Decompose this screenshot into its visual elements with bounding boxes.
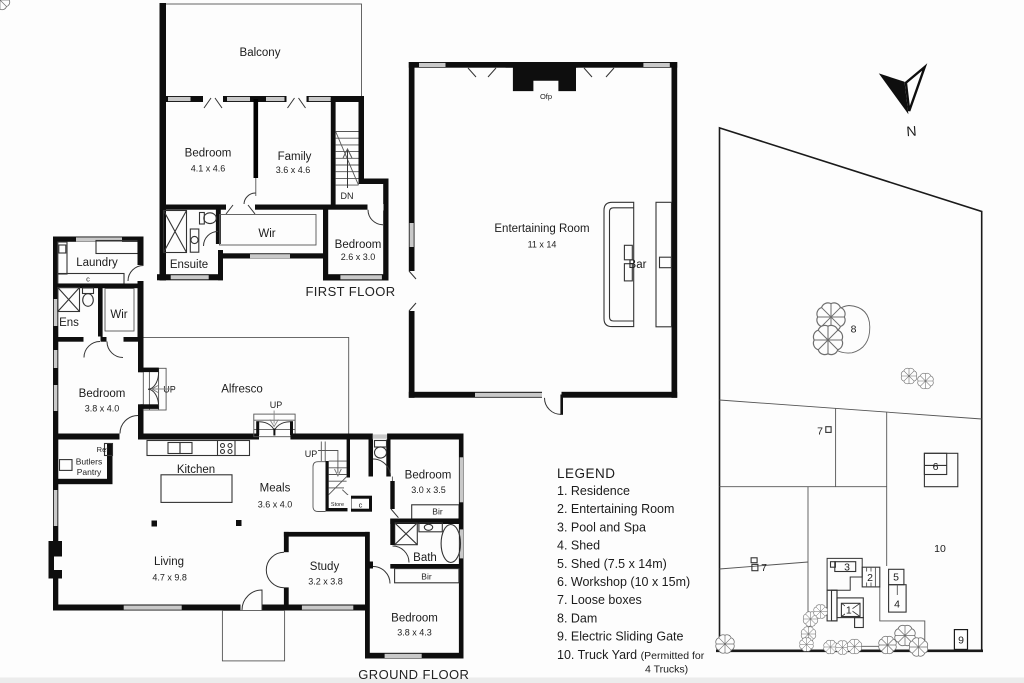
svg-text:4.1 x 4.6: 4.1 x 4.6 [191,164,226,174]
svg-text:3: 3 [844,562,850,574]
svg-text:c: c [359,501,363,510]
svg-text:Meals: Meals [260,483,291,495]
svg-text:Bir: Bir [421,572,432,582]
svg-text:Study: Study [310,561,340,573]
svg-text:N: N [906,123,917,140]
svg-text:FIRST FLOOR: FIRST FLOOR [305,284,395,299]
svg-text:7. Loose boxes: 7. Loose boxes [557,593,642,607]
svg-text:Ens: Ens [59,317,79,329]
svg-text:DN: DN [341,191,354,201]
svg-text:11 x 14: 11 x 14 [528,240,557,250]
svg-text:2. Entertaining Room: 2. Entertaining Room [557,502,674,516]
svg-text:Bath: Bath [413,552,437,564]
svg-text:UP: UP [270,400,283,410]
svg-text:1: 1 [846,605,852,617]
svg-text:8: 8 [851,324,857,336]
svg-text:3.2 x 3.8: 3.2 x 3.8 [308,577,343,587]
svg-text:7: 7 [817,426,823,438]
svg-text:3.8 x 4.0: 3.8 x 4.0 [85,404,120,414]
svg-text:Kitchen: Kitchen [177,464,215,476]
svg-text:7: 7 [761,562,767,574]
svg-text:2.6 x 3.0: 2.6 x 3.0 [341,252,376,262]
svg-text:Wir: Wir [258,228,275,240]
svg-text:10: 10 [934,543,946,555]
svg-text:Butlers: Butlers [76,457,102,467]
svg-text:5: 5 [893,572,899,584]
svg-text:4.7 x 9.8: 4.7 x 9.8 [152,573,187,583]
svg-text:UP: UP [163,385,176,395]
svg-text:2: 2 [867,572,873,584]
svg-text:c: c [86,275,90,284]
svg-text:3.6 x 4.0: 3.6 x 4.0 [258,500,293,510]
svg-text:9: 9 [958,635,964,647]
svg-text:6. Workshop (10 x 15m): 6. Workshop (10 x 15m) [557,575,690,589]
svg-text:3. Pool and Spa: 3. Pool and Spa [557,520,646,534]
svg-text:6: 6 [933,461,939,473]
svg-text:4: 4 [894,599,900,611]
svg-text:Bedroom: Bedroom [405,470,452,482]
svg-text:Ref: Ref [97,445,110,454]
svg-text:UP: UP [305,449,318,459]
svg-text:5. Shed (7.5 x 14m): 5. Shed (7.5 x 14m) [557,557,667,571]
svg-text:Alfresco: Alfresco [221,384,263,396]
svg-text:Bedroom: Bedroom [335,239,382,251]
svg-text:10. Truck Yard (Permitted for: 10. Truck Yard (Permitted for [557,648,705,662]
svg-text:Ensuite: Ensuite [170,259,208,271]
svg-text:GROUND FLOOR: GROUND FLOOR [358,667,469,682]
svg-text:8. Dam: 8. Dam [557,611,597,625]
svg-text:Bedroom: Bedroom [185,148,232,160]
svg-text:Wir: Wir [110,309,127,321]
svg-text:Family: Family [278,151,312,163]
svg-text:Store: Store [331,502,344,508]
svg-text:3.0 x 3.5: 3.0 x 3.5 [411,485,446,495]
svg-text:3.6 x 4.6: 3.6 x 4.6 [276,165,311,175]
svg-text:Laundry: Laundry [76,257,118,269]
svg-text:Bedroom: Bedroom [391,613,438,625]
svg-text:Pantry: Pantry [77,467,102,477]
svg-text:4. Shed: 4. Shed [557,539,600,553]
svg-text:Balcony: Balcony [240,47,281,59]
svg-text:9. Electric Sliding Gate: 9. Electric Sliding Gate [557,630,683,644]
svg-text:Bedroom: Bedroom [79,388,126,400]
svg-text:LEGEND: LEGEND [557,466,616,481]
svg-text:Ofp: Ofp [540,92,552,101]
svg-text:Entertaining Room: Entertaining Room [494,223,589,235]
svg-text:Bar: Bar [629,259,647,271]
svg-text:1. Residence: 1. Residence [557,484,630,498]
svg-text:3.8 x 4.3: 3.8 x 4.3 [397,628,432,638]
svg-text:Living: Living [154,556,184,568]
svg-text:4 Trucks): 4 Trucks) [645,664,688,676]
svg-text:Bir: Bir [432,507,443,517]
